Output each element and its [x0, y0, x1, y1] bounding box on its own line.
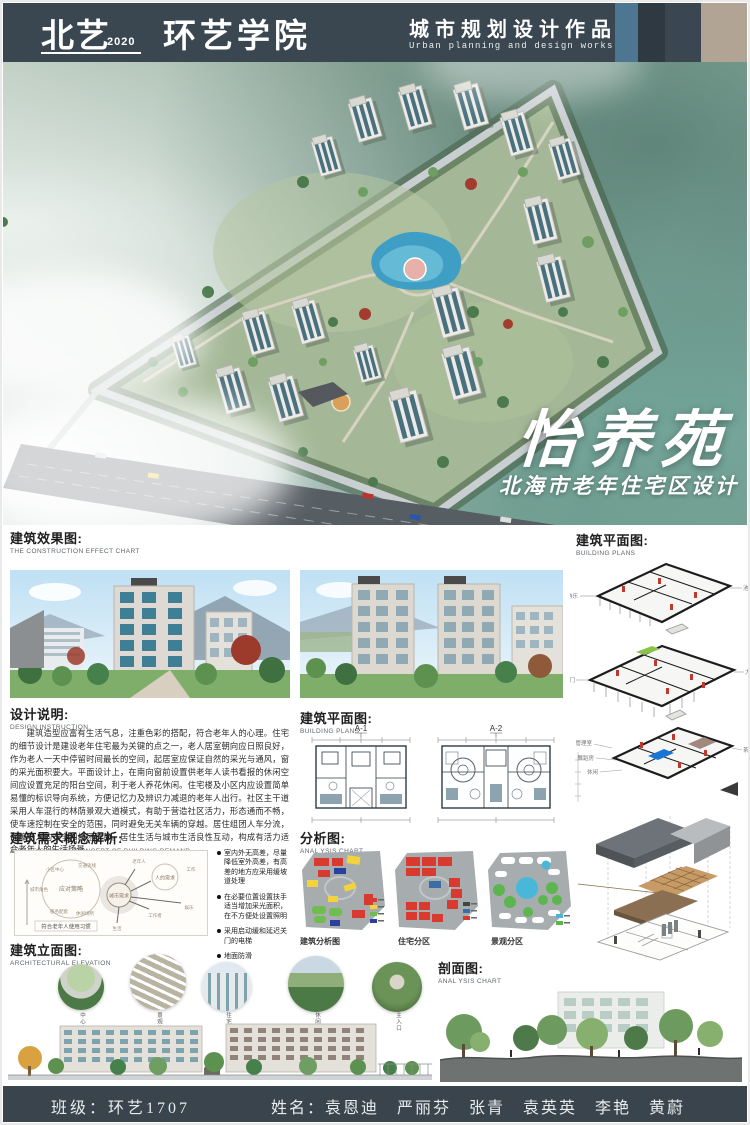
aerial-rendering: 怡养苑 北海市老年住宅区设计 [3, 62, 747, 525]
section-title: 建筑效果图: [10, 528, 140, 547]
footer-bar: 班级：环艺1707 姓名：袁恩迪 严丽芬 张青 袁英英 李艳 黄蔚 [3, 1086, 747, 1122]
analysis-caption-1: 建筑分析图 [300, 936, 340, 947]
header-stripe-dark [638, 3, 665, 62]
axon-plan-3: 管理室 舞蹈房 休闲 茶室 [575, 728, 748, 778]
svg-text:管理室: 管理室 [575, 739, 592, 747]
svg-text:生活: 生活 [113, 925, 122, 932]
svg-text:侧门: 侧门 [570, 676, 575, 684]
svg-text:休闲: 休闲 [587, 768, 599, 776]
svg-text:舞蹈房: 舞蹈房 [577, 754, 594, 762]
bullet-item: 室内外无高差，尽量降低室外高差，有高差的地方应采用缓坡道处理 [217, 849, 293, 887]
header-bar: 北艺 2020 环艺学院 城市规划设计作品 Urban planning and… [3, 3, 747, 62]
bullet-dot-icon [217, 929, 221, 933]
bullet-item: 地面防滑 [217, 952, 293, 961]
bullet-dot-icon [217, 895, 221, 899]
svg-text:池区: 池区 [743, 584, 748, 592]
header-title-en: Urban planning and design works [409, 41, 614, 51]
section-title: 分析图: [300, 828, 363, 847]
svg-text:城市角色: 城市角色 [30, 886, 48, 893]
header-stripe-blue [615, 3, 638, 62]
section-title: 建筑立面图: [10, 940, 111, 959]
header-stripe-beige [701, 3, 747, 62]
footer-names: 姓名：袁恩迪 严丽芬 张青 袁英英 李艳 黄蔚 [271, 1094, 685, 1118]
section-subtitle: THE CONSTRUCTION EFFECT CHART [10, 548, 140, 555]
section-drawing [440, 980, 742, 1082]
elevation-photo-inset-5 [372, 962, 422, 1012]
section-elevation-heading: 建筑立面图: ARCHITECTURAL ELEVATION [10, 940, 111, 967]
analysis-caption-3: 景观分区 [491, 936, 523, 947]
logo-underline [41, 52, 141, 54]
svg-text:城市需求: 城市需求 [109, 893, 129, 900]
logo-dept: 环艺学院 [163, 9, 311, 57]
svg-text:娱乐: 娱乐 [185, 904, 194, 911]
effect-render-2 [300, 570, 563, 698]
svg-text:人的需求: 人的需求 [155, 875, 175, 882]
section-subtitle: ARCHITECTURAL ELEVATION [10, 960, 111, 967]
analysis-diagram-building [300, 850, 386, 932]
svg-text:工作者: 工作者 [148, 912, 162, 919]
floor-plan-a2: A-2 [428, 722, 564, 826]
logo-year: 2020 [107, 36, 135, 48]
bullet-text: 室内外无高差，尽量降低室外高差，有高差的地方应采用缓坡道处理 [224, 849, 293, 887]
svg-text:老年人: 老年人 [132, 858, 146, 865]
section-title: 建筑平面图: [576, 530, 648, 549]
bullet-dot-icon [217, 954, 221, 958]
axon-plan-2: 侧门 大厅 [570, 646, 748, 717]
section-title: 剖面图: [438, 958, 501, 977]
svg-text:工作: 工作 [187, 866, 196, 873]
poster: 北艺 2020 环艺学院 城市规划设计作品 Urban planning and… [0, 0, 750, 1125]
effect-render-1 [10, 570, 290, 698]
svg-text:A-1: A-1 [355, 724, 368, 733]
section-title: 建筑需求概念解析: [10, 828, 190, 847]
svg-text:服务配套: 服务配套 [50, 908, 68, 915]
svg-text:小区中心: 小区中心 [46, 866, 64, 873]
svg-text:茶室: 茶室 [743, 746, 748, 754]
concept-bubble-diagram: 城市需求 应对策略 小区中心 城市角色 服务配套 交通流线 休闲场所 人的需求 … [14, 850, 208, 936]
section-title: 设计说明: [10, 704, 88, 723]
bullet-item: 采用启动缓和延迟关门的电梯 [217, 927, 293, 946]
bullet-text: 在必要位置设置扶手适当增加采光面积，在不方便处设置照明 [224, 893, 293, 921]
svg-text:A-2: A-2 [490, 724, 503, 733]
svg-text:符合老年人使用习惯: 符合老年人使用习惯 [41, 923, 91, 931]
axon-floor-plans: 游乐 池区 侧门 大厅 [570, 552, 748, 812]
svg-text:休闲场所: 休闲场所 [76, 910, 94, 917]
svg-text:应对策略: 应对策略 [59, 885, 83, 893]
elevation-photo-inset-2 [130, 954, 186, 1010]
demand-bullet-list: 室内外无高差，尽量降低室外高差，有高差的地方应采用缓坡道处理 在必要位置设置扶手… [217, 849, 293, 967]
elevation-photo-inset-1 [58, 964, 104, 1010]
header-title-cn: 城市规划设计作品 [409, 13, 617, 42]
bullet-text: 地面防滑 [224, 952, 252, 961]
logo-main: 北艺 [41, 9, 111, 57]
project-title: 怡养苑 [514, 389, 736, 479]
elevation-photo-inset-4 [288, 956, 344, 1012]
bullet-dot-icon [217, 851, 221, 855]
footer-class: 班级：环艺1707 [51, 1094, 190, 1118]
axon-plan-1: 游乐 池区 [570, 564, 748, 626]
exploded-axon-diagram [578, 806, 746, 962]
bullet-item: 在必要位置设置扶手适当增加采光面积，在不方便处设置照明 [217, 893, 293, 921]
elevation-photo-inset-3 [202, 962, 251, 1011]
svg-text:交通流线: 交通流线 [78, 862, 96, 869]
analysis-diagram-residential [393, 850, 479, 932]
project-subtitle: 北海市老年住宅区设计 [499, 470, 739, 500]
analysis-caption-2: 住宅分区 [398, 936, 430, 947]
bullet-text: 采用启动缓和延迟关门的电梯 [224, 927, 293, 946]
svg-text:大厅: 大厅 [745, 668, 748, 676]
analysis-diagram-landscape [486, 850, 572, 932]
elevation-drawing [8, 1018, 432, 1084]
floor-plan-a1: A-1 [300, 722, 422, 826]
svg-text:游乐: 游乐 [570, 592, 578, 600]
section-effect-heading: 建筑效果图: THE CONSTRUCTION EFFECT CHART [10, 528, 140, 555]
